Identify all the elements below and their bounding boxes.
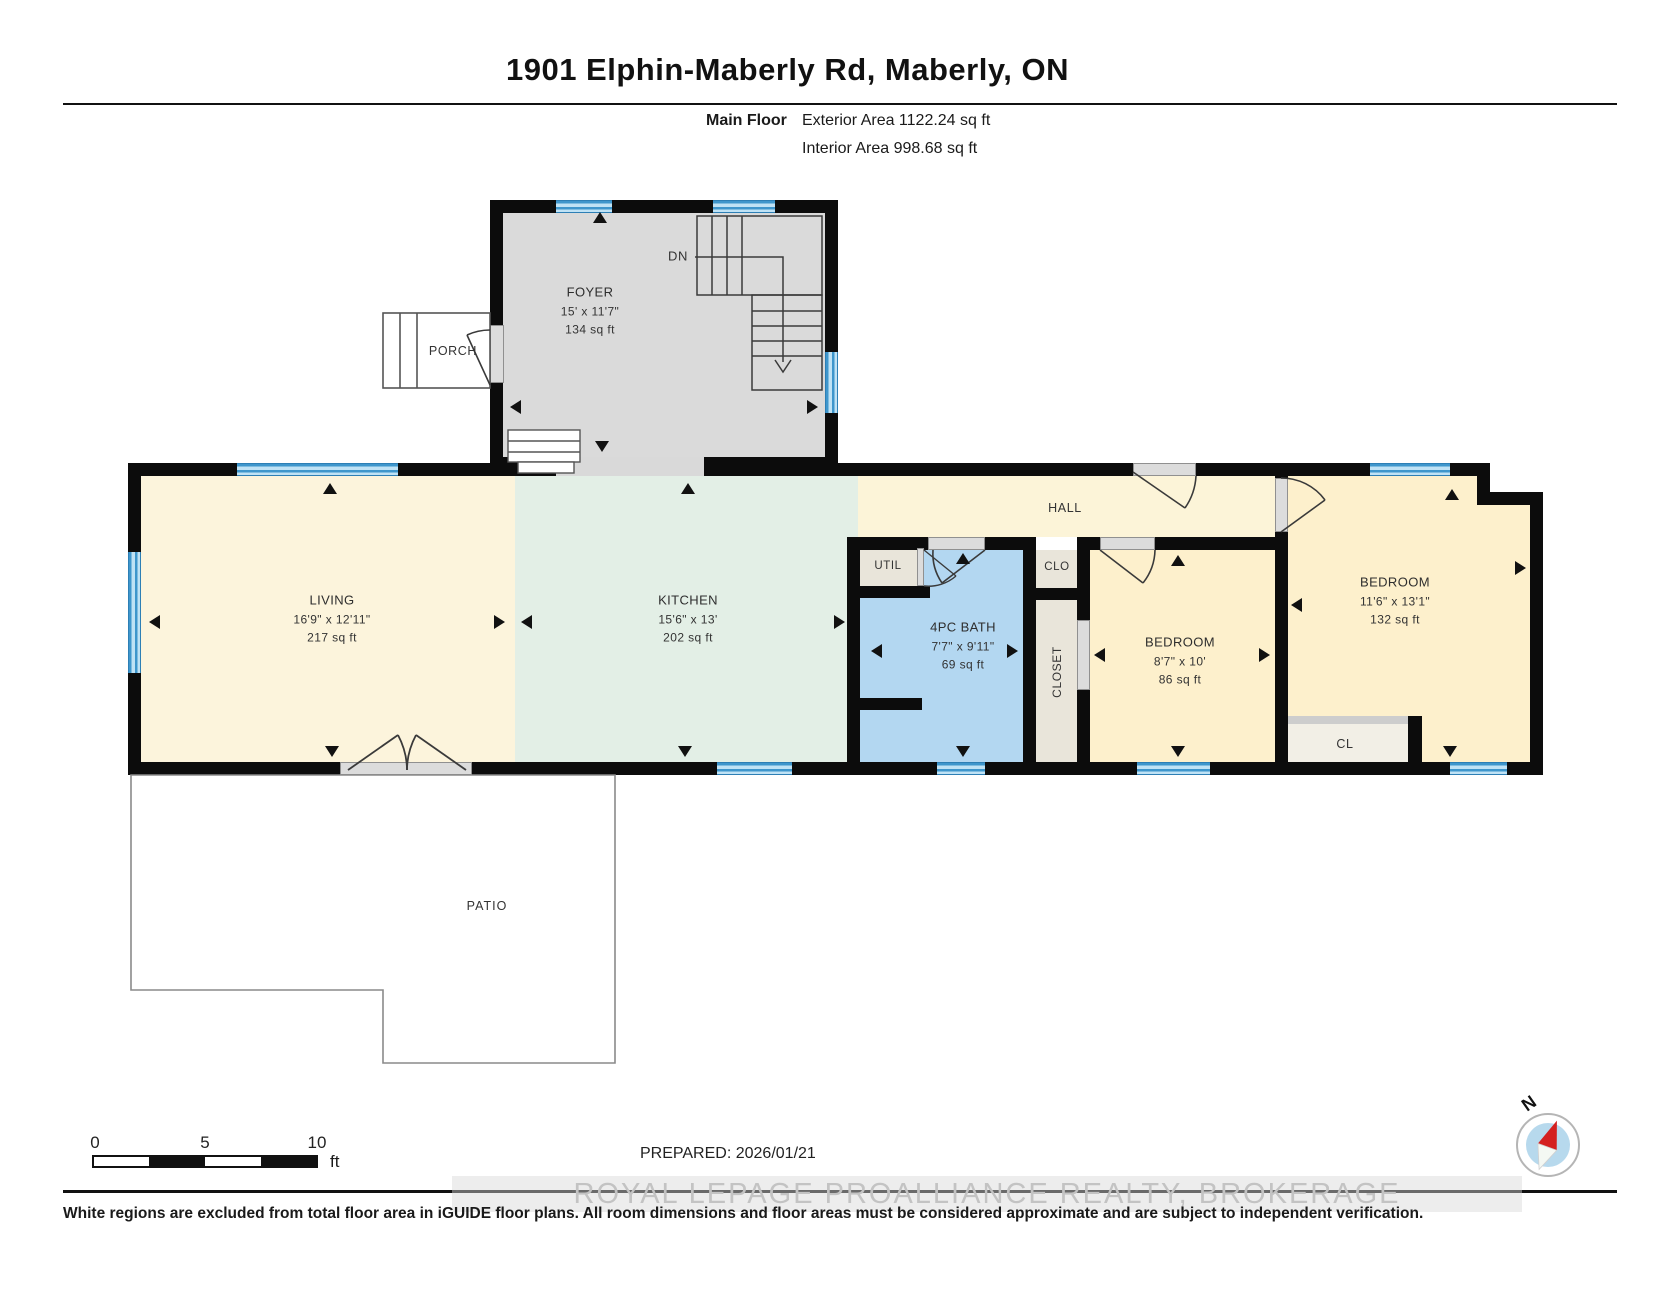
window <box>825 352 838 413</box>
header-divider <box>63 103 1617 105</box>
door <box>1100 537 1155 550</box>
interior-area: Interior Area 998.68 sq ft <box>802 140 977 158</box>
compass-north-label: N <box>1518 1091 1540 1115</box>
window <box>1137 762 1210 775</box>
patio-label: PATIO <box>467 899 508 913</box>
clo-label: CLO <box>1044 561 1069 573</box>
door <box>917 548 924 586</box>
disclaimer-text: White regions are excluded from total fl… <box>63 1205 1463 1223</box>
kitchen-label: KITCHEN 15'6" x 13' 202 sq ft <box>658 590 718 646</box>
bath-label: 4PC BATH 7'7" x 9'11" 69 sq ft <box>930 617 996 673</box>
door <box>1275 478 1288 532</box>
util-label: UTIL <box>874 560 901 572</box>
bedroom-large-label: BEDROOM 11'6" x 13'1" 132 sq ft <box>1360 572 1430 628</box>
patio-double-door <box>340 762 472 775</box>
door <box>490 325 504 383</box>
door <box>1133 463 1196 476</box>
compass-icon: N <box>1517 1091 1579 1176</box>
door <box>928 537 985 550</box>
window <box>713 200 775 213</box>
window <box>237 463 398 476</box>
scale-bar <box>93 1156 317 1167</box>
porch-label: PORCH <box>429 344 477 358</box>
window <box>717 762 792 775</box>
cl-label: CL <box>1336 737 1353 751</box>
living-label: LIVING 16'9" x 12'11" 217 sq ft <box>293 590 370 646</box>
hall-label: HALL <box>1048 501 1082 515</box>
window <box>937 762 985 775</box>
floor-plan-page: 1901 Elphin-Maberly Rd, Maberly, ON Main… <box>0 0 1680 1298</box>
closet-label: CLOSET <box>1050 646 1064 698</box>
stairs-dn-label: DN <box>668 249 688 264</box>
scale-bar-unit: ft <box>330 1152 339 1172</box>
notch-cover <box>1490 455 1550 495</box>
foyer-label: FOYER 15' x 11'7" 134 sq ft <box>561 282 619 338</box>
window <box>1450 762 1507 775</box>
closet-bifold-door <box>1077 620 1090 690</box>
window <box>128 552 141 673</box>
page-title: 1901 Elphin-Maberly Rd, Maberly, ON <box>0 52 1575 88</box>
floor-label: Main Floor <box>706 112 787 130</box>
window <box>1370 463 1450 476</box>
prepared-date: PREPARED: 2026/01/21 <box>640 1145 816 1163</box>
foyer-fill <box>503 213 825 463</box>
foyer-kitchen-opening <box>556 457 704 476</box>
window <box>556 200 612 213</box>
patio-outline <box>131 775 615 1063</box>
exterior-area: Exterior Area 1122.24 sq ft <box>802 112 990 130</box>
bedroom-small-label: BEDROOM 8'7" x 10' 86 sq ft <box>1145 632 1215 688</box>
